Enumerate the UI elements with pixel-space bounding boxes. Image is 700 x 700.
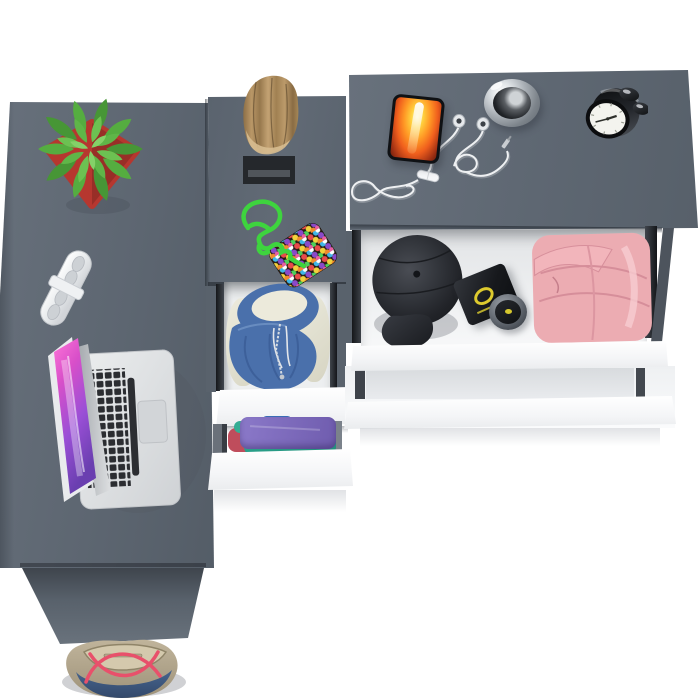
log-stand-slot (248, 170, 290, 177)
zipper-pull (280, 375, 285, 380)
cable-plug (501, 135, 512, 149)
desk-cabinet-seam (205, 99, 209, 286)
potted-succulent (18, 83, 158, 218)
dresser-leg-front-left (355, 368, 365, 399)
dresser-floor-shadow (360, 428, 660, 446)
drawer2-rail-left (222, 424, 227, 457)
trackpad (138, 400, 168, 443)
chrome-pocket-watch (484, 79, 540, 127)
scene-canvas (0, 0, 700, 700)
laptop (38, 320, 213, 518)
phone-screen (390, 97, 442, 161)
white-furniture-lock (34, 244, 98, 332)
dresser-under-gap (366, 368, 634, 399)
cologne-bottle (489, 294, 527, 330)
alarm-clock (580, 84, 648, 146)
cabinet-floor-shadow (214, 490, 346, 512)
inline-remote (416, 169, 439, 182)
middle-drawer-front-2 (208, 448, 354, 492)
paracord-pouch (226, 194, 342, 298)
drawer2-post-left (213, 424, 222, 457)
pouch-dots (266, 220, 340, 290)
desk-front-edge (20, 563, 206, 567)
watch-face (493, 87, 531, 119)
log-decor (228, 68, 310, 188)
folded-purple-shirt (240, 417, 336, 449)
flame-streak (407, 102, 425, 155)
cologne-logo-dot (505, 309, 512, 314)
smartphone (387, 93, 446, 164)
pink-sweatpants (525, 228, 657, 348)
earbud-left (453, 115, 465, 128)
cologne-cap (495, 300, 521, 324)
dresser-leg-front-right (636, 368, 645, 399)
tote-bag (58, 620, 190, 700)
candy-dot-pouch (266, 220, 340, 290)
earbud-right (475, 116, 491, 132)
